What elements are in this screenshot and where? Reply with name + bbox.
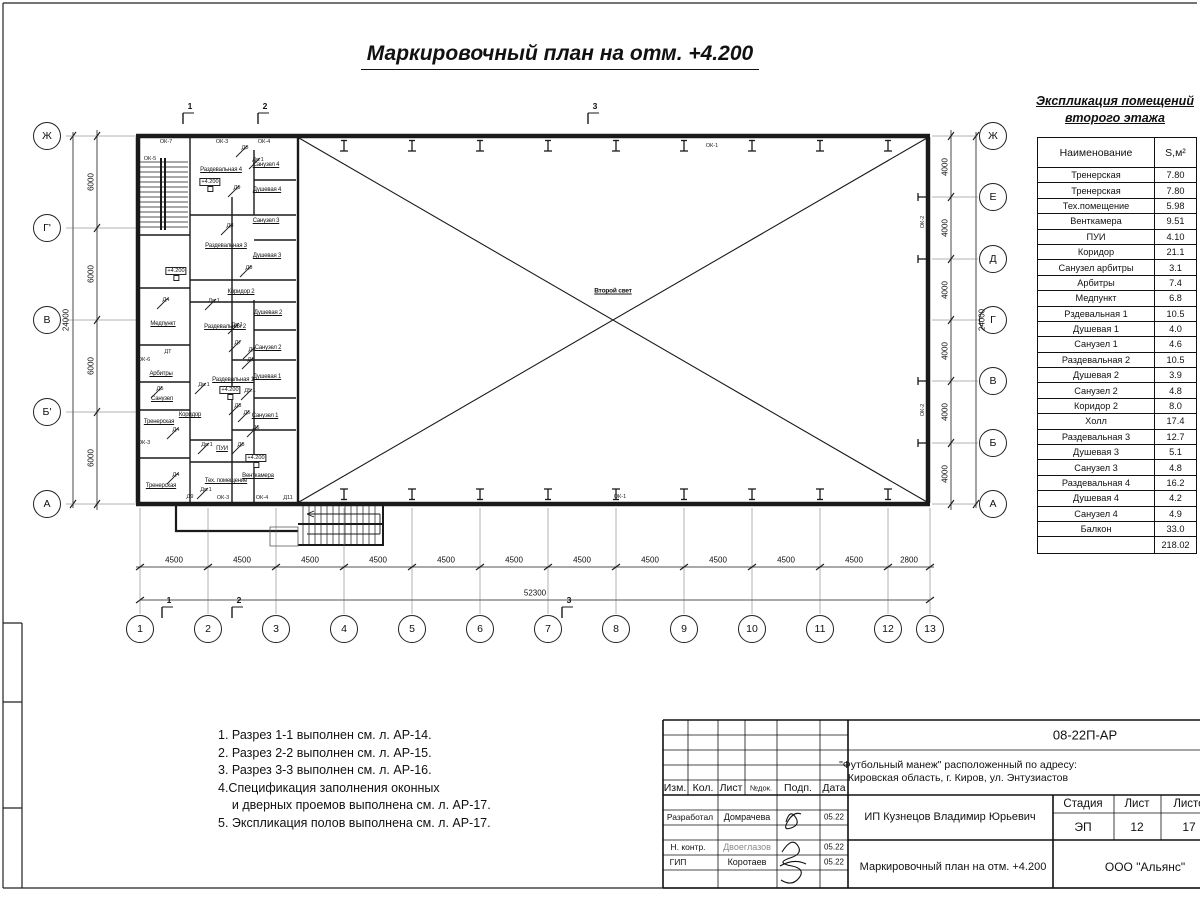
role-developer: Разработал — [667, 812, 713, 822]
name-developer: Домрачева — [724, 812, 771, 822]
table-row: Медпункт6.8 — [1038, 291, 1196, 306]
col-header-name: Наименование — [1038, 138, 1155, 167]
role-ncontr: Н. контр. — [670, 842, 705, 852]
signature-2 — [780, 842, 806, 883]
role-gip: ГИП — [670, 857, 687, 867]
plan-walls — [136, 136, 930, 546]
table-row: Раздевальная 210.5 — [1038, 353, 1196, 368]
table-row: Тренерская7.80 — [1038, 168, 1196, 183]
name-ncontr: Двоеглазов — [723, 842, 771, 852]
sheets-label: Листов — [1173, 798, 1200, 810]
notes-list: 1. Разрез 1-1 выполнен см. л. АР-14.2. Р… — [218, 727, 491, 832]
drawing-sheet: { "sheet": { "title": "Маркировочный пла… — [0, 0, 1200, 900]
note-line: 1. Разрез 1-1 выполнен см. л. АР-14. — [218, 727, 491, 745]
stage-value: ЭП — [1074, 820, 1091, 834]
sheet-label: Лист — [1125, 798, 1150, 810]
table-row: Санузел 24.8 — [1038, 383, 1196, 398]
stage-label: Стадия — [1063, 798, 1102, 810]
explication-rows: Тренерская7.80Тренерская7.80Тех.помещени… — [1038, 168, 1196, 553]
explication-header: Наименование S,м² — [1038, 138, 1196, 168]
table-row: Санузел 14.6 — [1038, 337, 1196, 352]
table-row: Венткамера9.51 — [1038, 214, 1196, 229]
company-name: ООО "Альянс" — [1105, 860, 1185, 874]
object-address-1: "Футбольный манеж" расположенный по адре… — [839, 759, 1077, 771]
table-row: Раздевальная 416.2 — [1038, 476, 1196, 491]
table-row: Балкон33.0 — [1038, 522, 1196, 537]
table-row: Санузел 44.9 — [1038, 507, 1196, 522]
note-line: и дверных проемов выполнена см. л. АР-17… — [218, 797, 491, 815]
hdr-ndok: №док. — [750, 784, 772, 793]
explication-title: Экспликация помещений второго этажа — [1030, 93, 1200, 127]
date-gip: 05.22 — [824, 858, 844, 867]
drawing-title: Маркировочный план на отм. +4.200 — [860, 861, 1047, 873]
hdr-data: Дата — [822, 782, 845, 794]
name-gip: Коротаев — [728, 857, 767, 867]
note-line: 5. Экспликация полов выполнена см. л. АР… — [218, 815, 491, 833]
object-address-2: Кировская область, г. Киров, ул. Энтузиа… — [848, 772, 1068, 784]
table-row: Тех.помещение5.98 — [1038, 199, 1196, 214]
date-ncontr: 05.22 — [824, 843, 844, 852]
table-row: Душевая 23.9 — [1038, 368, 1196, 383]
col-header-area: S,м² — [1155, 138, 1196, 167]
table-row: Санузел арбитры3.1 — [1038, 260, 1196, 275]
table-row: Душевая 35.1 — [1038, 445, 1196, 460]
table-row: Коридор21.1 — [1038, 245, 1196, 260]
sheet-value: 12 — [1130, 820, 1143, 834]
sheets-value: 17 — [1182, 820, 1195, 834]
generated-linework — [66, 113, 979, 618]
table-row: Холл17.4 — [1038, 414, 1196, 429]
hdr-list: Лист — [720, 782, 743, 794]
hdr-kol: Кол. — [693, 782, 714, 794]
table-row: Санузел 34.8 — [1038, 460, 1196, 475]
signature-1 — [786, 813, 801, 828]
table-row: ПУИ4.10 — [1038, 230, 1196, 245]
date-developer: 05.22 — [824, 813, 844, 822]
table-row: Душевая 44.2 — [1038, 491, 1196, 506]
signature-strokes — [780, 813, 806, 883]
note-line: 3. Разрез 3-3 выполнен см. л. АР-16. — [218, 762, 491, 780]
table-row: Арбитры7.4 — [1038, 276, 1196, 291]
table-row: Коридор 28.0 — [1038, 399, 1196, 414]
doc-number: 08-22П-АР — [1053, 728, 1117, 743]
note-line: 4.Спецификация заполнения оконных — [218, 780, 491, 798]
table-row: 218.02 — [1038, 537, 1196, 552]
hdr-izm: Изм. — [664, 782, 687, 794]
table-row: Раздевальная 312.7 — [1038, 430, 1196, 445]
page-title: Маркировочный план на отм. +4.200 — [180, 42, 940, 70]
hdr-podp: Подп. — [784, 782, 812, 794]
table-row: Душевая 14.0 — [1038, 322, 1196, 337]
table-row: Тренерская7.80 — [1038, 183, 1196, 198]
table-row: Рздевальная 110.5 — [1038, 307, 1196, 322]
client-name: ИП Кузнецов Владимир Юрьевич — [864, 811, 1035, 823]
note-line: 2. Разрез 2-2 выполнен см. л. АР-15. — [218, 745, 491, 763]
explication-table: Наименование S,м² Тренерская7.80Тренерск… — [1037, 137, 1197, 554]
